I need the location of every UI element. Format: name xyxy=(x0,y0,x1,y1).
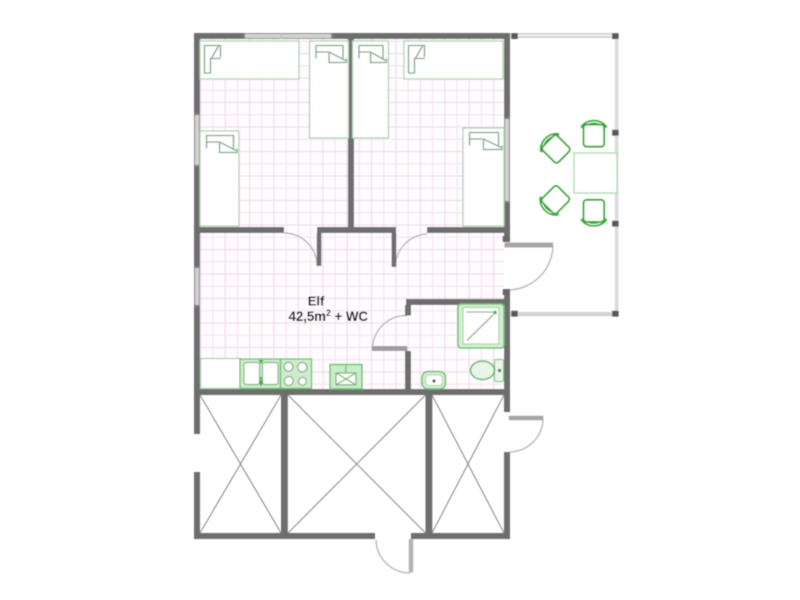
svg-text:Elf: Elf xyxy=(308,294,325,309)
